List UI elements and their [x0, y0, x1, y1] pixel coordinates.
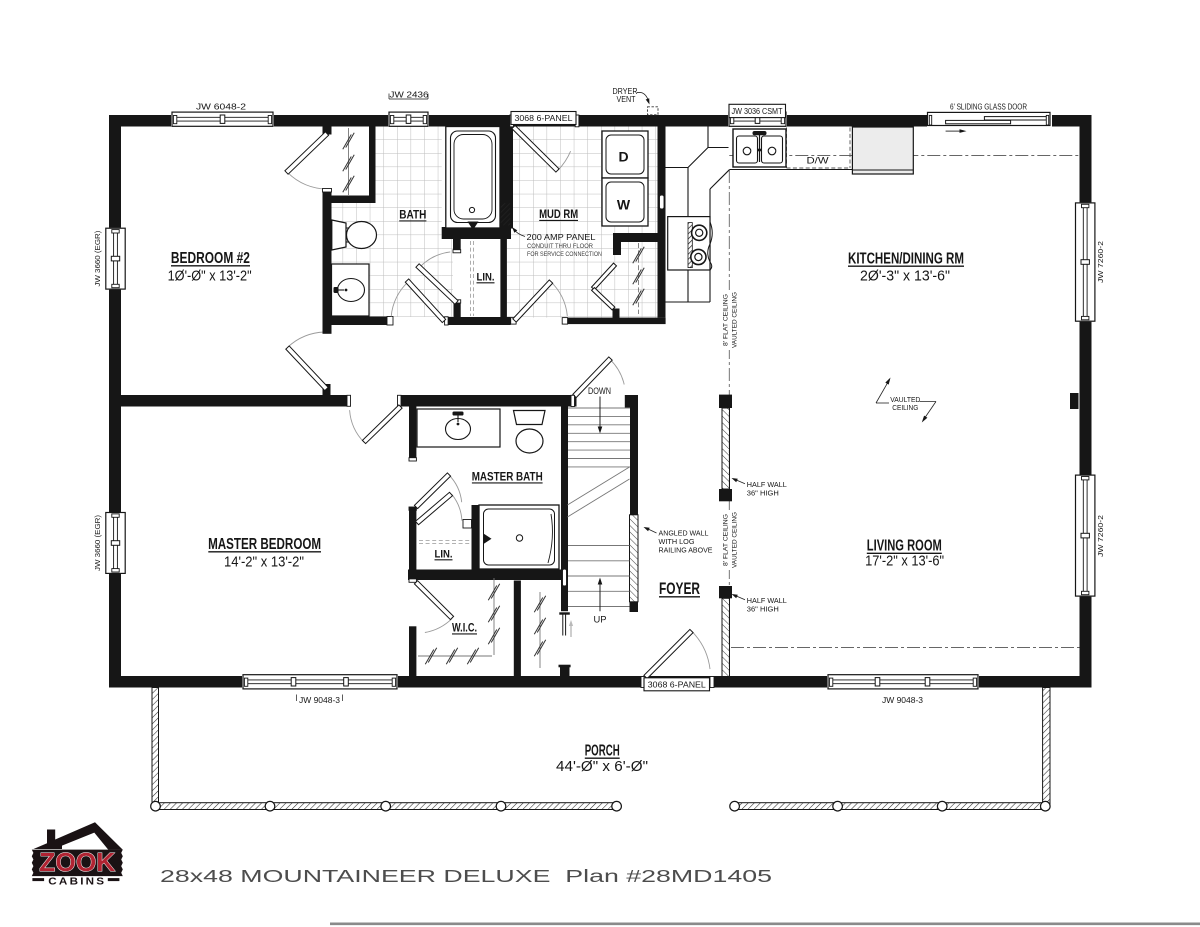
svg-text:D/W: D/W: [807, 156, 830, 166]
svg-text:JW 7260-2: JW 7260-2: [1096, 241, 1105, 283]
svg-text:17'-2" x 13'-6": 17'-2" x 13'-6": [865, 553, 944, 569]
svg-text:LIVING ROOM: LIVING ROOM: [867, 538, 942, 555]
svg-text:JW 2436: JW 2436: [390, 90, 429, 100]
svg-text:44'-Ø" x 6'-Ø": 44'-Ø" x 6'-Ø": [556, 759, 648, 775]
svg-text:36" HIGH: 36" HIGH: [747, 488, 779, 497]
svg-text:VAULTED CEILING: VAULTED CEILING: [732, 512, 739, 568]
svg-text:FOR SERVICE CONNECTION: FOR SERVICE CONNECTION: [527, 251, 602, 258]
svg-text:8' FLAT CEILING: 8' FLAT CEILING: [723, 514, 730, 566]
svg-text:DOWN: DOWN: [588, 386, 611, 396]
svg-text:KITCHEN/DINING RM: KITCHEN/DINING RM: [848, 250, 964, 267]
svg-text:CEILING: CEILING: [892, 403, 918, 412]
svg-text:W: W: [617, 197, 631, 213]
svg-text:JW 3036 CSMT: JW 3036 CSMT: [732, 107, 783, 116]
svg-text:MUD RM: MUD RM: [539, 207, 578, 221]
svg-text:200 AMP PANEL: 200 AMP PANEL: [527, 233, 597, 242]
svg-text:CONDUIT THRU FLOOR: CONDUIT THRU FLOOR: [527, 243, 593, 250]
svg-text:8' FLAT CEILING: 8' FLAT CEILING: [723, 294, 730, 346]
svg-text:2Ø'-3" x 13'-6": 2Ø'-3" x 13'-6": [860, 268, 950, 284]
svg-text:36" HIGH: 36" HIGH: [747, 604, 779, 613]
svg-text:3068 6-PANEL: 3068 6-PANEL: [648, 681, 706, 690]
svg-text:MASTER BEDROOM: MASTER BEDROOM: [208, 536, 321, 553]
svg-text:ZOOK: ZOOK: [39, 847, 115, 877]
svg-text:FOYER: FOYER: [659, 580, 700, 598]
svg-text:1Ø'-Ø" x 13'-2": 1Ø'-Ø" x 13'-2": [168, 269, 252, 285]
svg-text:JW 9048-3: JW 9048-3: [299, 695, 340, 705]
svg-text:RAILING ABOVE: RAILING ABOVE: [659, 546, 713, 555]
svg-text:CABINS: CABINS: [48, 876, 106, 888]
svg-text:VENT: VENT: [617, 95, 636, 104]
svg-text:LIN.: LIN.: [435, 549, 453, 561]
svg-text:BATH: BATH: [399, 208, 426, 222]
svg-text:MASTER BATH: MASTER BATH: [472, 470, 543, 484]
svg-text:PORCH: PORCH: [585, 743, 620, 760]
svg-text:3068 6-PANEL: 3068 6-PANEL: [515, 114, 573, 123]
svg-text:JW 7260-2: JW 7260-2: [1096, 515, 1105, 557]
svg-text:6' SLIDING GLASS DOOR: 6' SLIDING GLASS DOOR: [950, 102, 1027, 112]
svg-text:BEDROOM #2: BEDROOM #2: [171, 250, 250, 267]
svg-text:W.I.C.: W.I.C.: [452, 621, 477, 635]
svg-text:JW 3660 (EGR): JW 3660 (EGR): [93, 515, 102, 571]
svg-text:UP: UP: [594, 615, 607, 626]
svg-text:JW 9048-3: JW 9048-3: [882, 695, 923, 705]
svg-text:VAULTED CEILING: VAULTED CEILING: [732, 292, 739, 348]
svg-text:D: D: [618, 149, 628, 165]
svg-text:28x48 MOUNTAINEER DELUXE Plan: 28x48 MOUNTAINEER DELUXE Plan #28MD1405: [160, 866, 772, 886]
svg-text:JW 6048-2: JW 6048-2: [196, 102, 246, 112]
svg-text:14'-2" x 13'-2": 14'-2" x 13'-2": [224, 555, 304, 571]
svg-text:LIN.: LIN.: [477, 272, 495, 284]
svg-text:JW 3660 (EGR): JW 3660 (EGR): [93, 230, 102, 286]
